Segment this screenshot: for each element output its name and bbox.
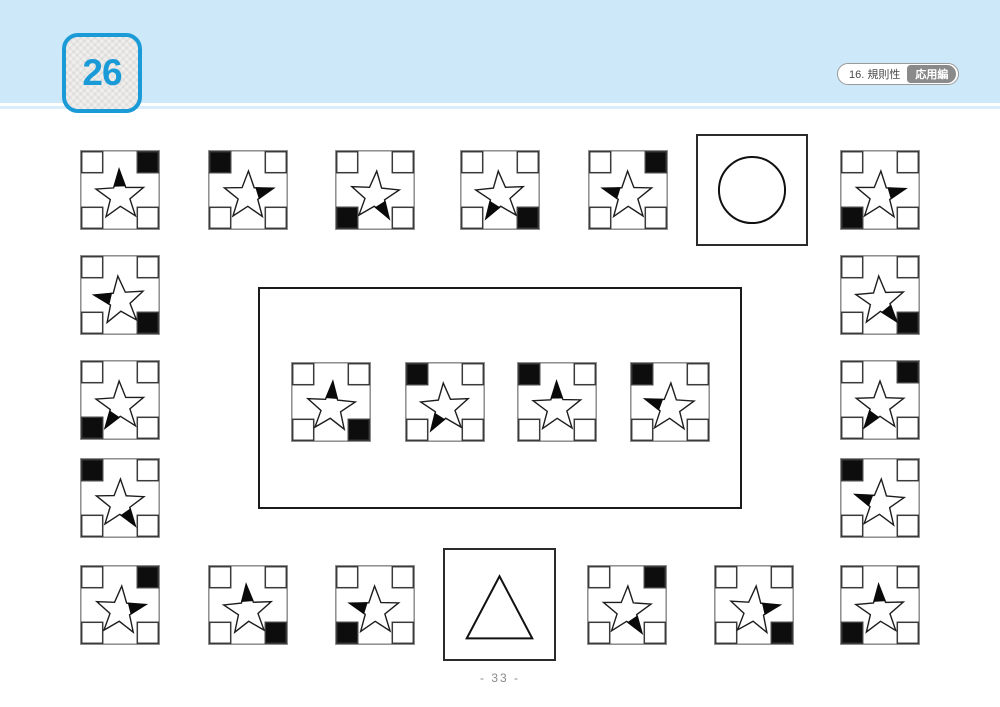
puzzle-tile-bottom_row-4 [587, 565, 667, 645]
corner-square-bottom-right-filled [517, 207, 538, 228]
corner-square-bottom-left [407, 419, 428, 440]
corner-square-top-right [265, 152, 286, 173]
corner-square-top-left [337, 152, 358, 173]
corner-square-bottom-left [589, 622, 610, 643]
corner-square-top-left-filled [519, 364, 540, 385]
corner-square-top-right [897, 460, 918, 481]
corner-square-bottom-left-filled [842, 207, 863, 228]
corner-square-top-right [771, 567, 792, 588]
puzzle-tile-top_row-6 [840, 150, 920, 230]
corner-square-top-left [210, 567, 231, 588]
corner-square-top-right-filled [645, 152, 666, 173]
puzzle-tile-right_column-3 [840, 458, 920, 538]
corner-square-top-right [392, 567, 413, 588]
corner-square-top-right [137, 257, 158, 278]
corner-square-top-right-filled [137, 567, 158, 588]
box-border [444, 549, 555, 660]
corner-square-bottom-right [644, 622, 665, 643]
corner-square-bottom-right [265, 207, 286, 228]
puzzle-tile-center_box-1 [291, 362, 371, 442]
corner-square-top-left [842, 257, 863, 278]
corner-square-top-left [82, 152, 103, 173]
corner-square-bottom-right [392, 207, 413, 228]
corner-square-bottom-left-filled [337, 207, 358, 228]
puzzle-tile-left_column-1 [80, 255, 160, 335]
corner-square-top-right [137, 362, 158, 383]
corner-square-bottom-left [519, 419, 540, 440]
puzzle-tile-center_box-2 [405, 362, 485, 442]
corner-square-top-left-filled [407, 364, 428, 385]
corner-square-top-right [392, 152, 413, 173]
puzzle-board [0, 0, 1000, 707]
puzzle-tile-top_row-4 [460, 150, 540, 230]
corner-square-bottom-right [687, 419, 708, 440]
corner-square-bottom-right [897, 515, 918, 536]
corner-square-bottom-right-filled [265, 622, 286, 643]
corner-square-top-right [897, 152, 918, 173]
corner-square-bottom-right-filled [137, 312, 158, 333]
puzzle-tile-top_row-5 [588, 150, 668, 230]
corner-square-bottom-left [842, 417, 863, 438]
triangle-answer-box [443, 548, 556, 661]
corner-square-bottom-right [137, 417, 158, 438]
corner-square-bottom-left [82, 515, 103, 536]
corner-square-top-right [574, 364, 595, 385]
corner-square-bottom-right [137, 515, 158, 536]
corner-square-bottom-right-filled [348, 419, 369, 440]
corner-square-top-right [897, 567, 918, 588]
corner-square-top-left-filled [842, 460, 863, 481]
corner-square-top-left [716, 567, 737, 588]
puzzle-tile-bottom_row-3 [335, 565, 415, 645]
corner-square-bottom-right [645, 207, 666, 228]
corner-square-bottom-left [210, 207, 231, 228]
corner-square-top-left [82, 362, 103, 383]
corner-square-bottom-right [897, 622, 918, 643]
puzzle-tile-bottom_row-1 [80, 565, 160, 645]
corner-square-bottom-left-filled [337, 622, 358, 643]
puzzle-tile-top_row-2 [208, 150, 288, 230]
corner-square-bottom-left [842, 312, 863, 333]
puzzle-tile-left_column-2 [80, 360, 160, 440]
puzzle-tile-top_row-1 [80, 150, 160, 230]
corner-square-bottom-right [137, 622, 158, 643]
corner-square-top-left [842, 567, 863, 588]
corner-square-bottom-left-filled [842, 622, 863, 643]
corner-square-top-right [897, 257, 918, 278]
corner-square-top-left-filled [210, 152, 231, 173]
corner-square-bottom-left [82, 312, 103, 333]
corner-square-top-left [589, 567, 610, 588]
corner-square-top-right [517, 152, 538, 173]
corner-square-bottom-left-filled [82, 417, 103, 438]
corner-square-top-right-filled [897, 362, 918, 383]
corner-square-bottom-right [574, 419, 595, 440]
corner-square-top-right [687, 364, 708, 385]
corner-square-bottom-right [897, 207, 918, 228]
corner-square-bottom-right [392, 622, 413, 643]
corner-square-bottom-right [897, 417, 918, 438]
corner-square-top-left [590, 152, 611, 173]
corner-square-bottom-right [462, 419, 483, 440]
corner-square-bottom-right [137, 207, 158, 228]
corner-square-top-left [462, 152, 483, 173]
corner-square-bottom-left [842, 515, 863, 536]
corner-square-bottom-left [82, 207, 103, 228]
corner-square-top-right [348, 364, 369, 385]
puzzle-tile-bottom_row-6 [840, 565, 920, 645]
puzzle-tile-bottom_row-2 [208, 565, 288, 645]
corner-square-top-right-filled [137, 152, 158, 173]
corner-square-top-left [82, 567, 103, 588]
puzzle-tile-left_column-3 [80, 458, 160, 538]
corner-square-bottom-right-filled [897, 312, 918, 333]
corner-square-bottom-left [293, 419, 314, 440]
corner-square-top-left [842, 152, 863, 173]
corner-square-top-left [337, 567, 358, 588]
corner-square-top-right [137, 460, 158, 481]
corner-square-bottom-left [716, 622, 737, 643]
corner-square-top-left [82, 257, 103, 278]
corner-square-bottom-left [590, 207, 611, 228]
puzzle-tile-top_row-3 [335, 150, 415, 230]
corner-square-top-left [293, 364, 314, 385]
workbook-page: 26 16. 規則性 応用編 - 33 - [0, 0, 1000, 707]
puzzle-tile-right_column-2 [840, 360, 920, 440]
corner-square-top-left-filled [632, 364, 653, 385]
corner-square-top-right [462, 364, 483, 385]
corner-square-bottom-left [462, 207, 483, 228]
corner-square-top-right-filled [644, 567, 665, 588]
puzzle-tile-center_box-3 [517, 362, 597, 442]
corner-square-bottom-left [82, 622, 103, 643]
puzzle-tile-right_column-1 [840, 255, 920, 335]
circle-answer-box [696, 134, 808, 246]
corner-square-top-left [842, 362, 863, 383]
corner-square-top-right [265, 567, 286, 588]
puzzle-tile-center_box-4 [630, 362, 710, 442]
box-border [697, 135, 807, 245]
corner-square-bottom-left [210, 622, 231, 643]
corner-square-bottom-left [632, 419, 653, 440]
puzzle-tile-bottom_row-5 [714, 565, 794, 645]
page-number: - 33 - [0, 671, 1000, 685]
corner-square-bottom-right-filled [771, 622, 792, 643]
corner-square-top-left-filled [82, 460, 103, 481]
